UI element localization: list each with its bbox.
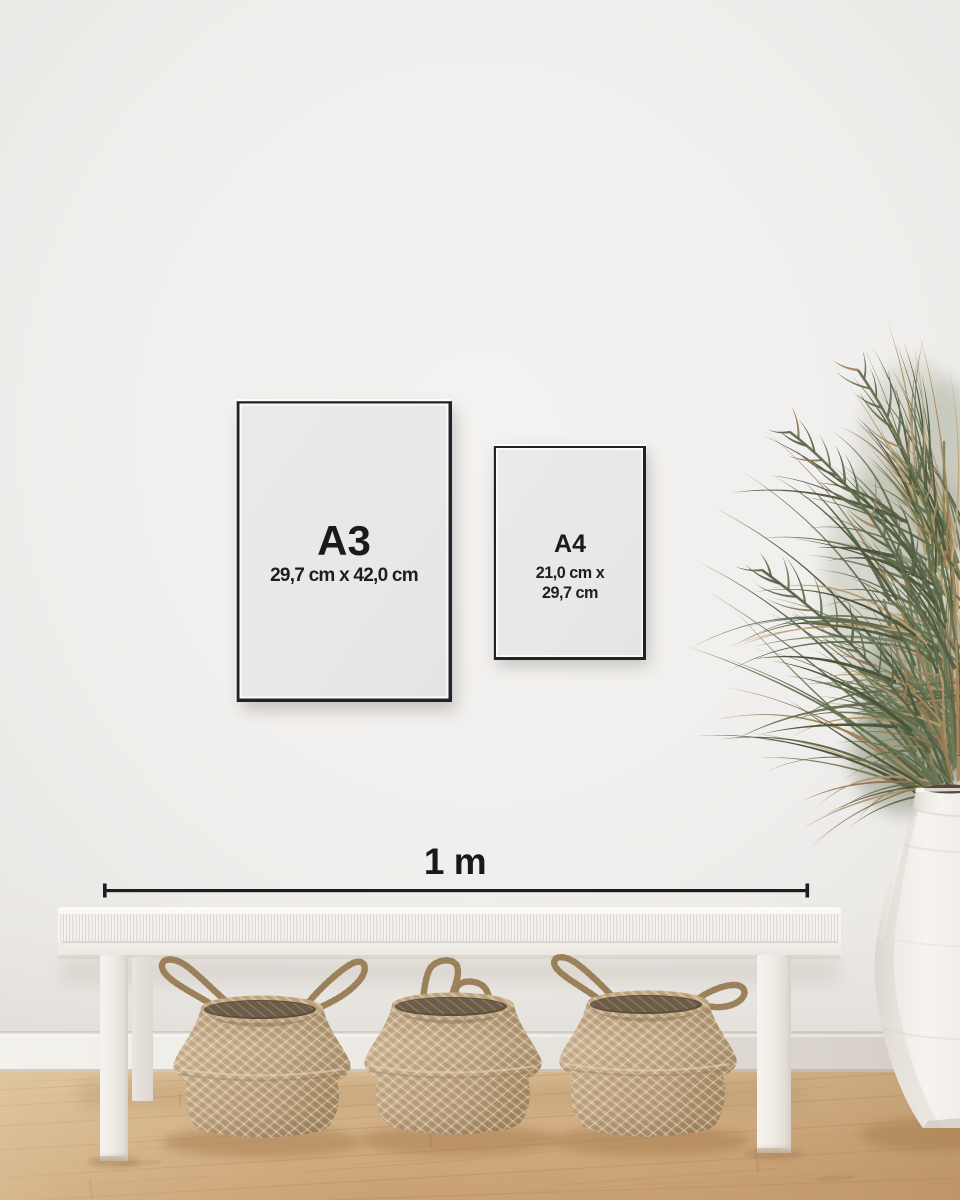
svg-text:A3: A3 — [317, 517, 371, 564]
svg-text:A4: A4 — [554, 530, 586, 558]
svg-text:29,7 cm: 29,7 cm — [542, 584, 598, 602]
svg-text:1 m: 1 m — [424, 841, 486, 882]
svg-text:29,7 cm x 42,0 cm: 29,7 cm x 42,0 cm — [270, 565, 418, 586]
svg-text:21,0 cm x: 21,0 cm x — [536, 564, 605, 582]
